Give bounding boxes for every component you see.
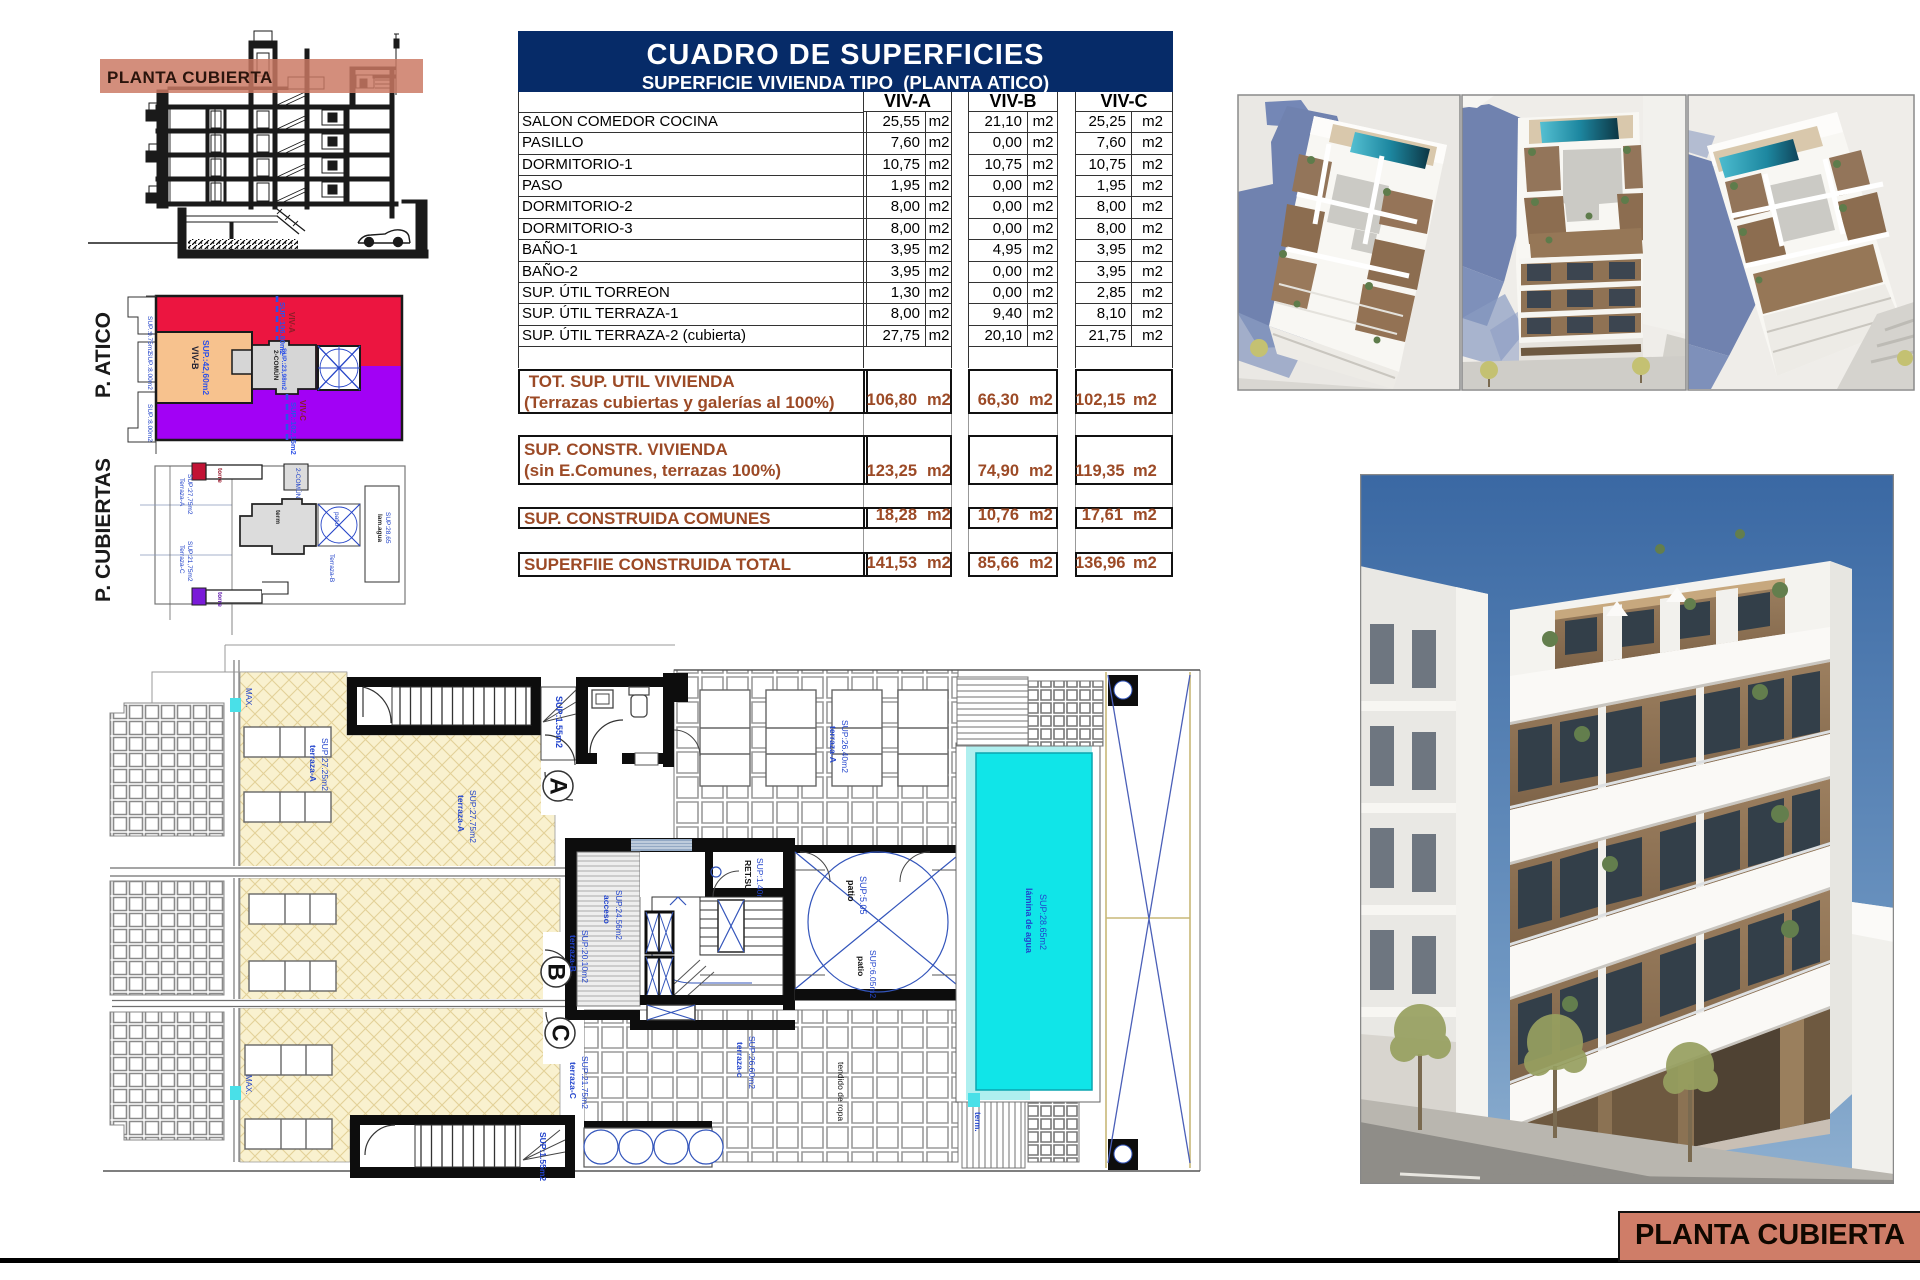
svg-text:Terraza-B: Terraza-B [328,554,335,582]
svg-text:SUP.:8.00m2: SUP.:8.00m2 [146,404,153,442]
svg-text:SUP:27.75m2: SUP:27.75m2 [468,790,478,843]
svg-text:SUP:21.75m2: SUP:21.75m2 [580,1056,590,1109]
svg-text:MAX.: MAX. [244,688,253,708]
svg-text:SUP:26.40m2: SUP:26.40m2 [840,720,850,773]
svg-text:VIV-C: VIV-C [298,400,307,421]
svg-text:SUP:28.65m2: SUP:28.65m2 [1038,894,1048,950]
svg-text:Terraza-C: Terraza-C [178,545,185,574]
svg-text:C: C [547,1024,574,1041]
svg-text:SUP:5.05: SUP:5.05 [858,876,868,915]
svg-text:P. ATICO: P. ATICO [92,312,115,398]
svg-text:PLANTA CUBIERTA: PLANTA CUBIERTA [107,68,273,87]
svg-text:patio: patio [846,880,856,902]
svg-text:SUP:1.55m2: SUP:1.55m2 [554,696,564,748]
svg-text:SUP.:8.00m2: SUP.:8.00m2 [146,352,153,390]
svg-text:SUP:6.05m2: SUP:6.05m2 [868,950,878,998]
svg-text:VIV-A: VIV-A [287,312,296,333]
svg-text:SUP.:102,15m2: SUP.:102,15m2 [289,402,298,455]
svg-text:P. CUBIERTAS: P. CUBIERTAS [92,458,115,602]
svg-text:lam.agua: lam.agua [376,514,383,543]
svg-text:MAX.: MAX. [244,1075,253,1095]
svg-text:terraza-c: terraza-c [735,1042,745,1078]
svg-text:SUP:21,75m2: SUP:21,75m2 [186,541,193,582]
svg-text:SUP:28,65: SUP:28,65 [384,512,391,544]
svg-text:SUP:1.55m2: SUP:1.55m2 [538,1132,548,1181]
svg-text:lámina de agua: lámina de agua [1024,888,1034,954]
svg-text:SUP:20.10m2: SUP:20.10m2 [580,930,590,983]
svg-text:SUP.:106,80m2: SUP.:106,80m2 [278,302,287,355]
svg-text:SUP.:42,60m2: SUP.:42,60m2 [201,340,211,395]
svg-text:patio: patio [856,956,866,976]
svg-text:SUP:27,75m2: SUP:27,75m2 [186,474,193,515]
svg-text:A: A [545,777,572,794]
svg-text:SUP.:23,98m2: SUP.:23,98m2 [280,348,287,391]
svg-text:SUP:24.56m2: SUP:24.56m2 [614,890,623,940]
svg-text:tendido de ropa: tendido de ropa [836,1062,846,1121]
svg-text:terraza-A: terraza-A [456,795,466,832]
svg-text:SUP.:9.75m2: SUP.:9.75m2 [146,316,153,354]
svg-text:SUP:27.25m2: SUP:27.25m2 [320,738,330,791]
svg-text:B: B [543,963,570,980]
svg-text:Terraza-A: Terraza-A [178,478,185,507]
svg-text:terraza-C: terraza-C [568,1062,578,1099]
svg-text:terraza-A: terraza-A [828,726,838,763]
svg-text:RET.SU: RET.SU [743,860,753,890]
svg-text:torre: torre [216,592,223,607]
svg-text:term.: term. [973,1112,982,1132]
svg-text:patio: patio [333,512,340,526]
svg-text:term: term [274,510,281,524]
svg-text:VIV-B: VIV-B [190,346,200,370]
svg-text:SUP:26.60m2: SUP:26.60m2 [747,1036,757,1089]
svg-text:2-COMÚN: 2-COMÚN [272,350,281,381]
svg-text:torre: torre [216,468,223,483]
svg-text:2-COMÚN: 2-COMÚN [294,468,303,499]
svg-text:terraza-B: terraza-B [568,935,578,972]
svg-text:terraza-A: terraza-A [308,745,318,782]
svg-text:acceso: acceso [602,895,612,924]
